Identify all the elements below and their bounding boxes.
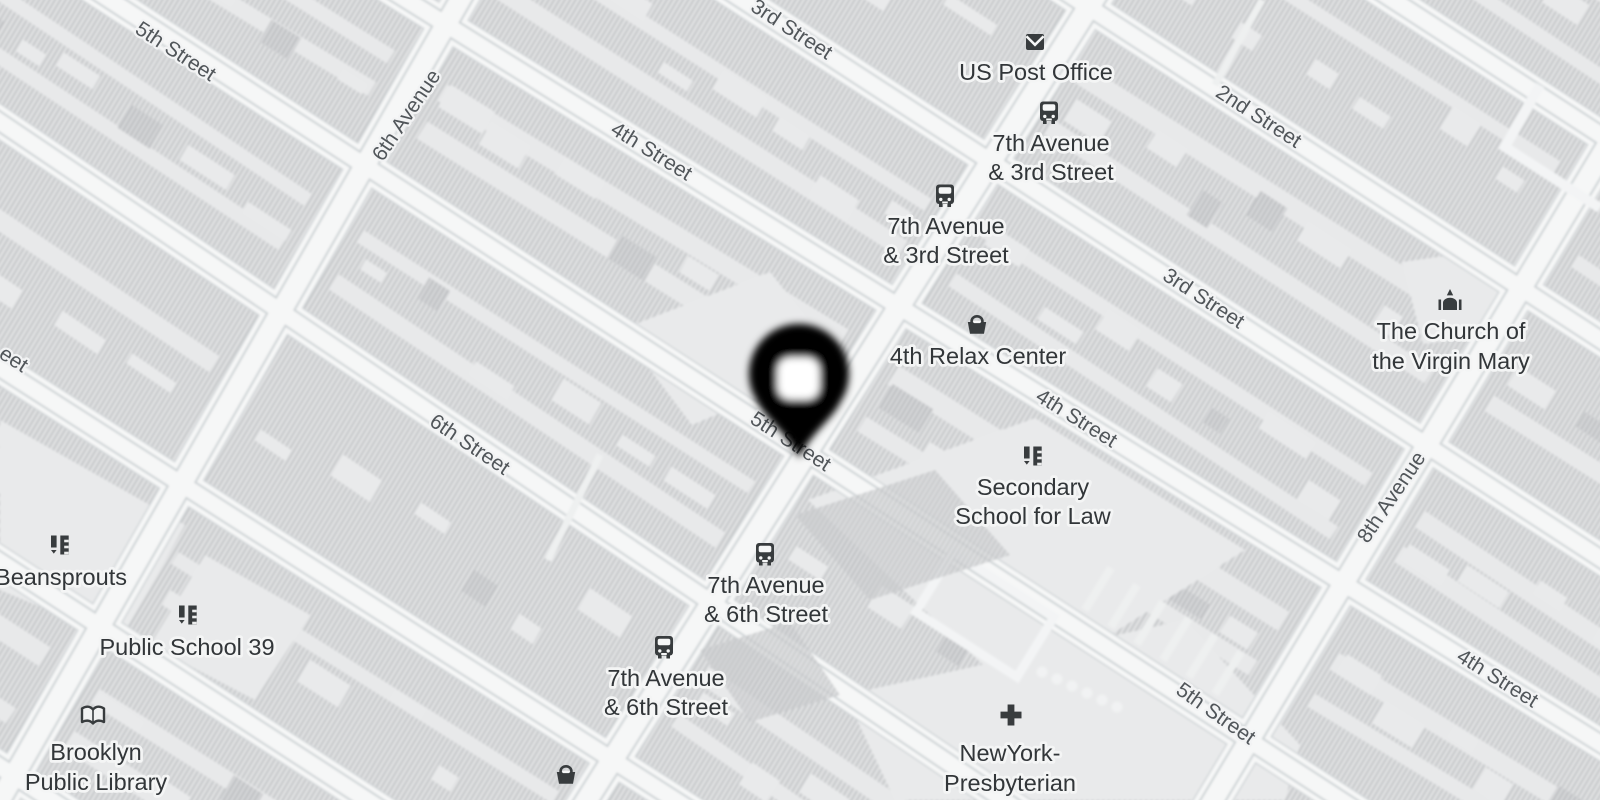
svg-text:Beansprouts: Beansprouts	[0, 564, 127, 590]
svg-text:& 3rd Street: & 3rd Street	[883, 242, 1009, 268]
svg-text:School for Law: School for Law	[955, 503, 1111, 529]
svg-text:Secondary: Secondary	[977, 474, 1090, 500]
svg-text:7th Avenue: 7th Avenue	[607, 665, 724, 691]
svg-text:4th Relax Center: 4th Relax Center	[890, 343, 1067, 369]
svg-text:& 6th Street: & 6th Street	[604, 694, 729, 720]
svg-text:Public Library: Public Library	[25, 769, 168, 795]
svg-text:7th Avenue: 7th Avenue	[887, 213, 1004, 239]
svg-text:Brooklyn: Brooklyn	[50, 739, 141, 765]
svg-text:& 3rd Street: & 3rd Street	[988, 159, 1114, 185]
svg-text:7th Avenue: 7th Avenue	[707, 572, 824, 598]
svg-text:Presbyterian: Presbyterian	[944, 770, 1076, 796]
svg-text:The Church of: The Church of	[1377, 318, 1526, 344]
svg-text:7th Avenue: 7th Avenue	[992, 130, 1109, 156]
svg-text:Public School 39: Public School 39	[99, 634, 274, 660]
svg-text:US Post Office: US Post Office	[959, 59, 1113, 85]
svg-text:the Virgin Mary: the Virgin Mary	[1372, 348, 1530, 374]
svg-text:& 6th Street: & 6th Street	[704, 601, 829, 627]
svg-text:NewYork-: NewYork-	[960, 740, 1061, 766]
